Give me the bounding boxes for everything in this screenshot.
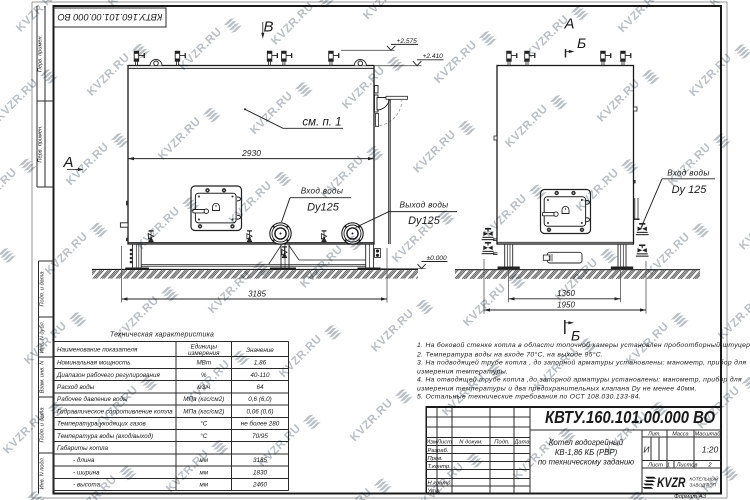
- svg-text:Выход воды: Выход воды: [399, 201, 448, 210]
- svg-text:мм: мм: [199, 482, 208, 489]
- svg-text:KVZR: KVZR: [657, 475, 686, 490]
- svg-text:Лист: Лист: [436, 440, 452, 446]
- svg-text:Б: Б: [577, 35, 586, 51]
- svg-text:- ширина: - ширина: [73, 469, 100, 476]
- svg-text:1: 1: [667, 463, 670, 469]
- svg-text:Б: Б: [571, 328, 580, 344]
- svg-text:В: В: [264, 19, 274, 36]
- svg-text:Лист: Лист: [647, 463, 663, 469]
- svg-text:Пров.: Пров.: [428, 456, 443, 462]
- svg-text:°С: °С: [200, 420, 208, 428]
- svg-text:Номинальная мощность: Номинальная мощность: [57, 360, 131, 367]
- svg-text:+2.575: +2.575: [397, 38, 418, 45]
- svg-text:Габариты котла: Габариты котла: [57, 444, 109, 452]
- svg-text:Дата: Дата: [513, 440, 530, 446]
- svg-text:Т.контр.: Т.контр.: [428, 464, 451, 470]
- svg-text:Температура воды (вход/выход): Температура воды (вход/выход): [57, 432, 153, 440]
- svg-text:3. На подводящей трубе котла: 3. На подводящей трубе котла , до запорн…: [417, 359, 746, 367]
- svg-text:0,06 (0,6): 0,06 (0,6): [247, 408, 274, 415]
- svg-text:Листов: Листов: [675, 463, 697, 469]
- svg-text:Dy125: Dy125: [307, 202, 340, 214]
- svg-text:МВт: МВт: [196, 360, 211, 367]
- svg-text:3185: 3185: [248, 289, 266, 298]
- svg-text:1830: 1830: [253, 469, 268, 476]
- svg-text:Диапазон рабочего регулировани: Диапазон рабочего регулирования: [56, 371, 160, 379]
- svg-text:+2.410: +2.410: [423, 53, 444, 60]
- svg-text:±0.000: ±0.000: [427, 255, 447, 262]
- svg-text:4. На отводящей трубе котла ,: 4. На отводящей трубе котла ,до запорной…: [417, 375, 742, 383]
- svg-text:2460: 2460: [252, 482, 268, 489]
- svg-text:64: 64: [256, 384, 264, 391]
- svg-text:Разраб.: Разраб.: [428, 448, 449, 454]
- svg-text:по техническому заданию: по техническому заданию: [538, 458, 634, 467]
- svg-text:Наименование показателя: Наименование показателя: [57, 347, 138, 354]
- svg-text:0,6 (6,0): 0,6 (6,0): [248, 396, 271, 403]
- svg-text:Инв. N подл.: Инв. N подл.: [40, 457, 46, 490]
- svg-text:1:20: 1:20: [702, 445, 719, 455]
- svg-text:- длина: - длина: [73, 456, 95, 464]
- svg-text:КВТУ.160.101.00.000 ВО: КВТУ.160.101.00.000 ВО: [58, 12, 163, 22]
- svg-text:Масса: Масса: [672, 432, 688, 438]
- svg-text:не более 280: не более 280: [241, 420, 280, 428]
- svg-text:Лит.: Лит.: [647, 432, 661, 438]
- svg-text:Расход воды: Расход воды: [57, 383, 95, 391]
- svg-text:см. п. 1: см. п. 1: [302, 117, 341, 129]
- svg-text:Перв. примен.: Перв. примен.: [38, 35, 44, 72]
- svg-text:мм: мм: [199, 469, 208, 476]
- svg-text:Изм: Изм: [426, 440, 437, 446]
- svg-text:Значение: Значение: [246, 347, 274, 354]
- svg-text:°С: °С: [200, 432, 208, 440]
- svg-text:А: А: [63, 154, 74, 171]
- svg-text:2930: 2930: [241, 148, 261, 158]
- svg-text:Взам. инв. N: Взам. инв. N: [40, 360, 46, 394]
- svg-text:Перв. примен.: Перв. примен.: [38, 125, 44, 162]
- svg-text:40-110: 40-110: [250, 372, 270, 379]
- svg-text:И: И: [643, 445, 650, 455]
- svg-text:N докум.: N докум.: [459, 440, 482, 446]
- svg-text:1,86: 1,86: [254, 360, 267, 367]
- svg-text:измерения: измерения: [188, 350, 220, 357]
- svg-text:Подп.: Подп.: [494, 440, 509, 446]
- svg-text:Масштаб: Масштаб: [695, 432, 722, 438]
- svg-text:Единицы: Единицы: [191, 342, 218, 350]
- svg-text:70/95: 70/95: [252, 433, 268, 440]
- svg-text:Подп. и дата: Подп. и дата: [40, 271, 46, 306]
- svg-text:МПа (кгс/см2): МПа (кгс/см2): [183, 408, 224, 415]
